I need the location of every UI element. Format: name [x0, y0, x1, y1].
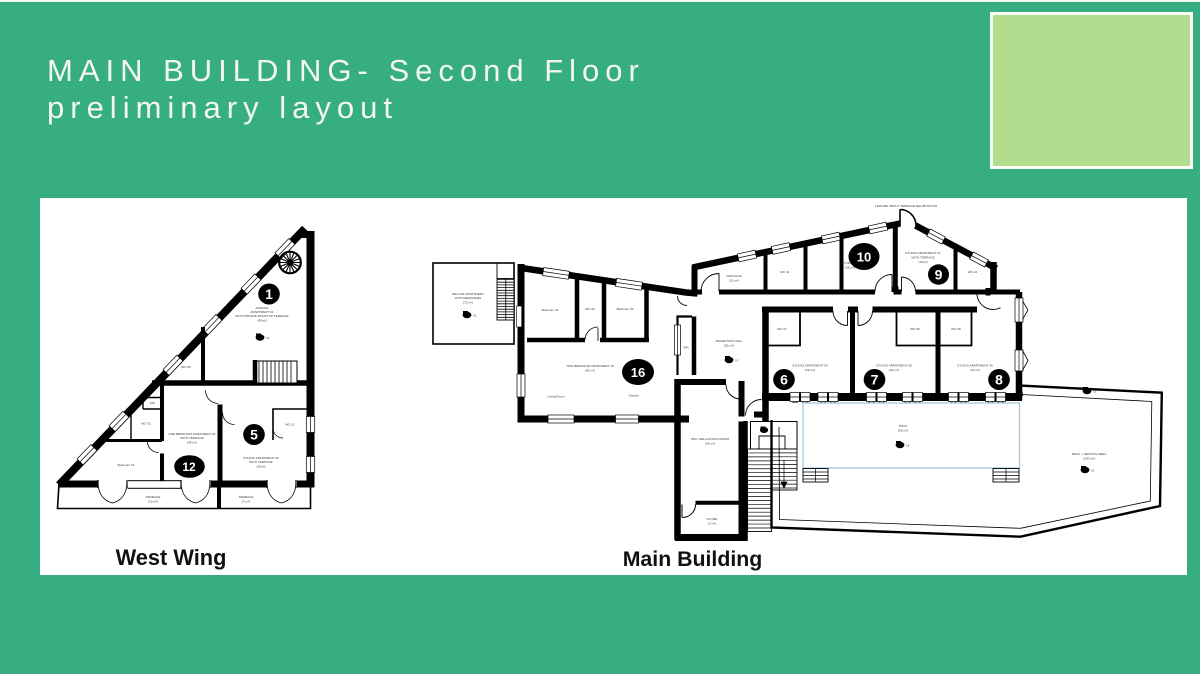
svg-text:(7 m²): (7 m²) — [242, 500, 250, 504]
svg-text:WC 06: WC 06 — [181, 365, 191, 369]
svg-text:WC 01: WC 01 — [285, 423, 295, 427]
svg-text:10: 10 — [857, 250, 871, 265]
svg-text:WC 11: WC 11 — [780, 270, 790, 274]
svg-text:W/D: W/D — [150, 401, 155, 405]
svg-text:STUDIO APARTMENT 06: STUDIO APARTMENT 06 — [957, 364, 993, 368]
svg-text:FOYER: FOYER — [707, 517, 718, 521]
svg-text:LEISURE ABOUT TERRACE DELIMITA: LEISURE ABOUT TERRACE DELIMITATION — [875, 204, 937, 208]
svg-text:(230 m²): (230 m²) — [1083, 457, 1095, 461]
svg-text:RECEPTION HALL: RECEPTION HALL — [716, 339, 743, 343]
svg-text:7: 7 — [871, 372, 879, 388]
svg-text:(19 m²): (19 m²) — [148, 500, 158, 504]
svg-text:9: 9 — [935, 267, 943, 283]
svg-text:5: 5 — [250, 427, 258, 443]
svg-text:WITH TERRACE: WITH TERRACE — [180, 436, 204, 440]
svg-text:West Wing: West Wing — [116, 545, 227, 570]
svg-text:WITH PRIVATE ROOFTOP TERRACE: WITH PRIVATE ROOFTOP TERRACE — [235, 314, 288, 318]
svg-text:19: 19 — [1093, 390, 1097, 394]
svg-text:(26m²): (26m²) — [256, 465, 265, 469]
svg-text:WITH MEZZANINE: WITH MEZZANINE — [455, 296, 482, 300]
svg-text:STUDIO APARTMENT 07: STUDIO APARTMENT 07 — [905, 251, 941, 255]
svg-text:02: 02 — [266, 336, 270, 340]
svg-text:Kitchen: Kitchen — [629, 394, 640, 398]
svg-text:WC 02: WC 02 — [141, 422, 151, 426]
svg-text:STUDIO APARTMENT 05: STUDIO APARTMENT 05 — [876, 364, 912, 368]
svg-text:(75 m²): (75 m²) — [463, 301, 473, 305]
svg-text:(48 m²): (48 m²) — [187, 441, 197, 445]
svg-text:WC 07: WC 07 — [777, 327, 787, 331]
svg-text:DECK + SEATING AREA: DECK + SEATING AREA — [1072, 452, 1108, 456]
svg-text:6: 6 — [780, 372, 788, 388]
svg-text:TWO BEDROOM APARTMENT 16: TWO BEDROOM APARTMENT 16 — [566, 364, 614, 368]
svg-text:Bedroom 01: Bedroom 01 — [542, 308, 559, 312]
svg-text:16: 16 — [631, 365, 645, 380]
svg-text:TERRACE: TERRACE — [146, 495, 161, 499]
svg-text:(95 m²): (95 m²) — [585, 369, 595, 373]
svg-text:Main Building: Main Building — [623, 547, 763, 571]
svg-text:15: 15 — [735, 359, 739, 363]
svg-text:(7 m²): (7 m²) — [708, 522, 716, 526]
svg-text:(66 m²): (66 m²) — [898, 429, 908, 433]
svg-text:Bedroom 01: Bedroom 01 — [118, 463, 135, 467]
svg-text:WITH TERRACE: WITH TERRACE — [249, 460, 273, 464]
svg-text:SPA / RELAXATION ROOM: SPA / RELAXATION ROOM — [691, 437, 730, 441]
svg-text:20: 20 — [1091, 469, 1095, 473]
svg-text:Bedroom 02: Bedroom 02 — [617, 307, 634, 311]
svg-text:WC 06: WC 06 — [910, 327, 920, 331]
svg-text:WC 08: WC 08 — [951, 327, 961, 331]
svg-text:WC 10: WC 10 — [968, 270, 978, 274]
svg-text:WITH TERRACE: WITH TERRACE — [911, 256, 935, 260]
svg-text:(29 m²): (29 m²) — [970, 368, 980, 372]
svg-text:(79m²): (79m²) — [918, 260, 927, 264]
svg-text:OFFICE 02: OFFICE 02 — [726, 274, 742, 278]
svg-text:Living Room: Living Room — [547, 395, 565, 399]
svg-text:POOL: POOL — [899, 424, 908, 428]
svg-text:8: 8 — [995, 372, 1003, 388]
svg-text:(95m²): (95m²) — [257, 319, 266, 323]
svg-text:WC 09: WC 09 — [585, 307, 595, 311]
svg-text:SPA: SPA — [683, 346, 689, 350]
svg-text:(21 m²): (21 m²) — [729, 279, 739, 283]
svg-text:(29 m²): (29 m²) — [805, 368, 815, 372]
svg-text:(29 m²): (29 m²) — [889, 368, 899, 372]
svg-text:TERRACE: TERRACE — [239, 495, 254, 499]
svg-text:STUDIO APARTMENT 04: STUDIO APARTMENT 04 — [792, 364, 828, 368]
svg-text:12: 12 — [182, 460, 196, 474]
svg-text:18: 18 — [906, 444, 910, 448]
svg-text:(28 m²): (28 m²) — [705, 442, 715, 446]
svg-text:1: 1 — [265, 286, 273, 302]
svg-text:05: 05 — [473, 314, 477, 318]
svg-text:(25 m²): (25 m²) — [724, 344, 734, 348]
